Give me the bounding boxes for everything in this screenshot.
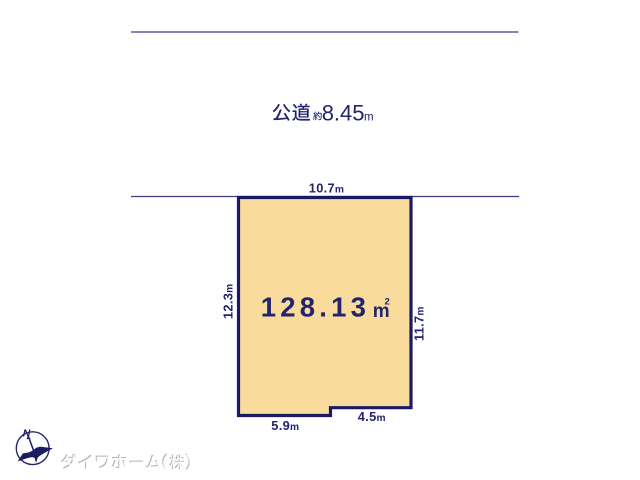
svg-text:2: 2: [385, 297, 390, 308]
svg-text:N: N: [23, 427, 31, 439]
svg-text:128.13: 128.13: [261, 292, 370, 323]
svg-text:m: m: [364, 111, 374, 123]
svg-text:8.45: 8.45: [322, 100, 365, 125]
